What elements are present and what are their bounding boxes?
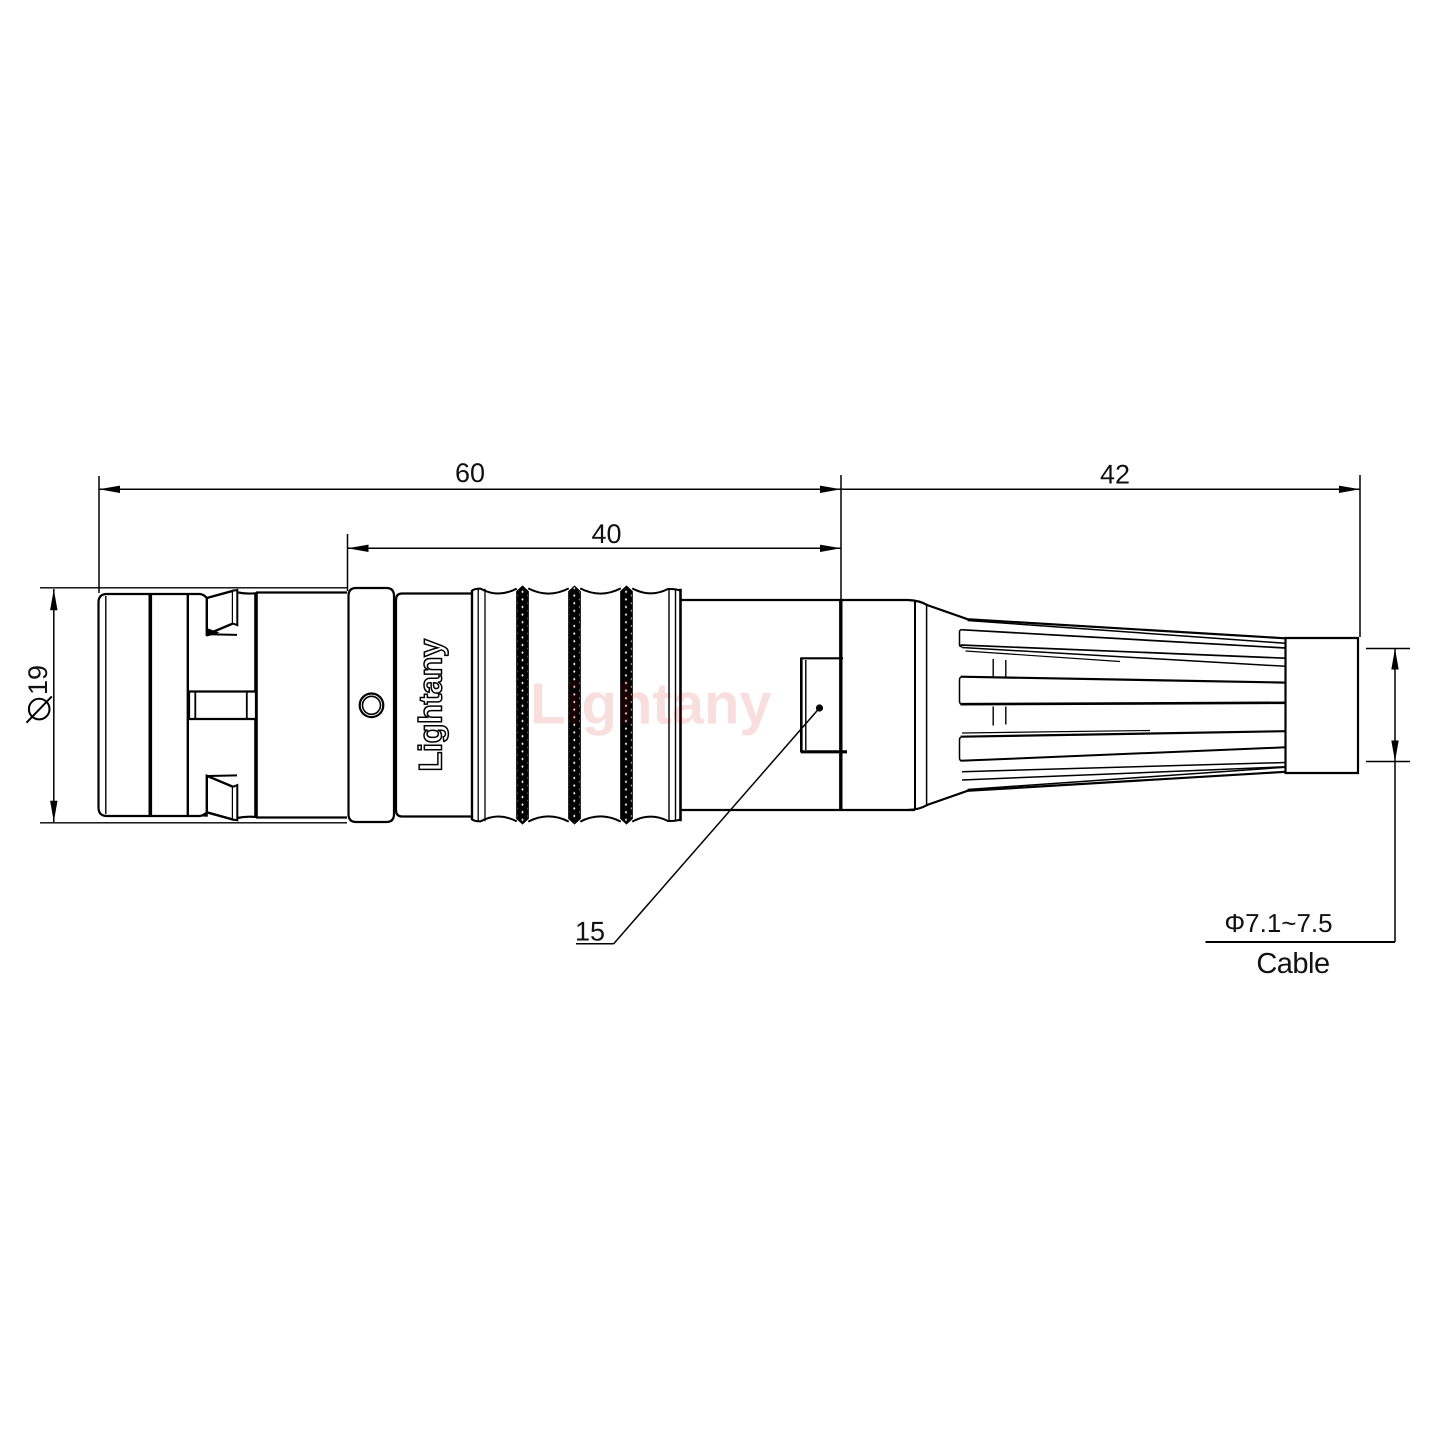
- svg-text:40: 40: [591, 519, 621, 549]
- svg-text:42: 42: [1100, 460, 1130, 490]
- svg-text:Cable: Cable: [1256, 948, 1329, 980]
- svg-text:Lightany: Lightany: [413, 639, 449, 772]
- svg-text:15: 15: [575, 917, 605, 947]
- svg-text:19: 19: [23, 665, 53, 695]
- svg-text:60: 60: [455, 458, 485, 488]
- svg-text:Lightany: Lightany: [530, 672, 772, 737]
- svg-text:Φ7.1~7.5: Φ7.1~7.5: [1224, 908, 1332, 938]
